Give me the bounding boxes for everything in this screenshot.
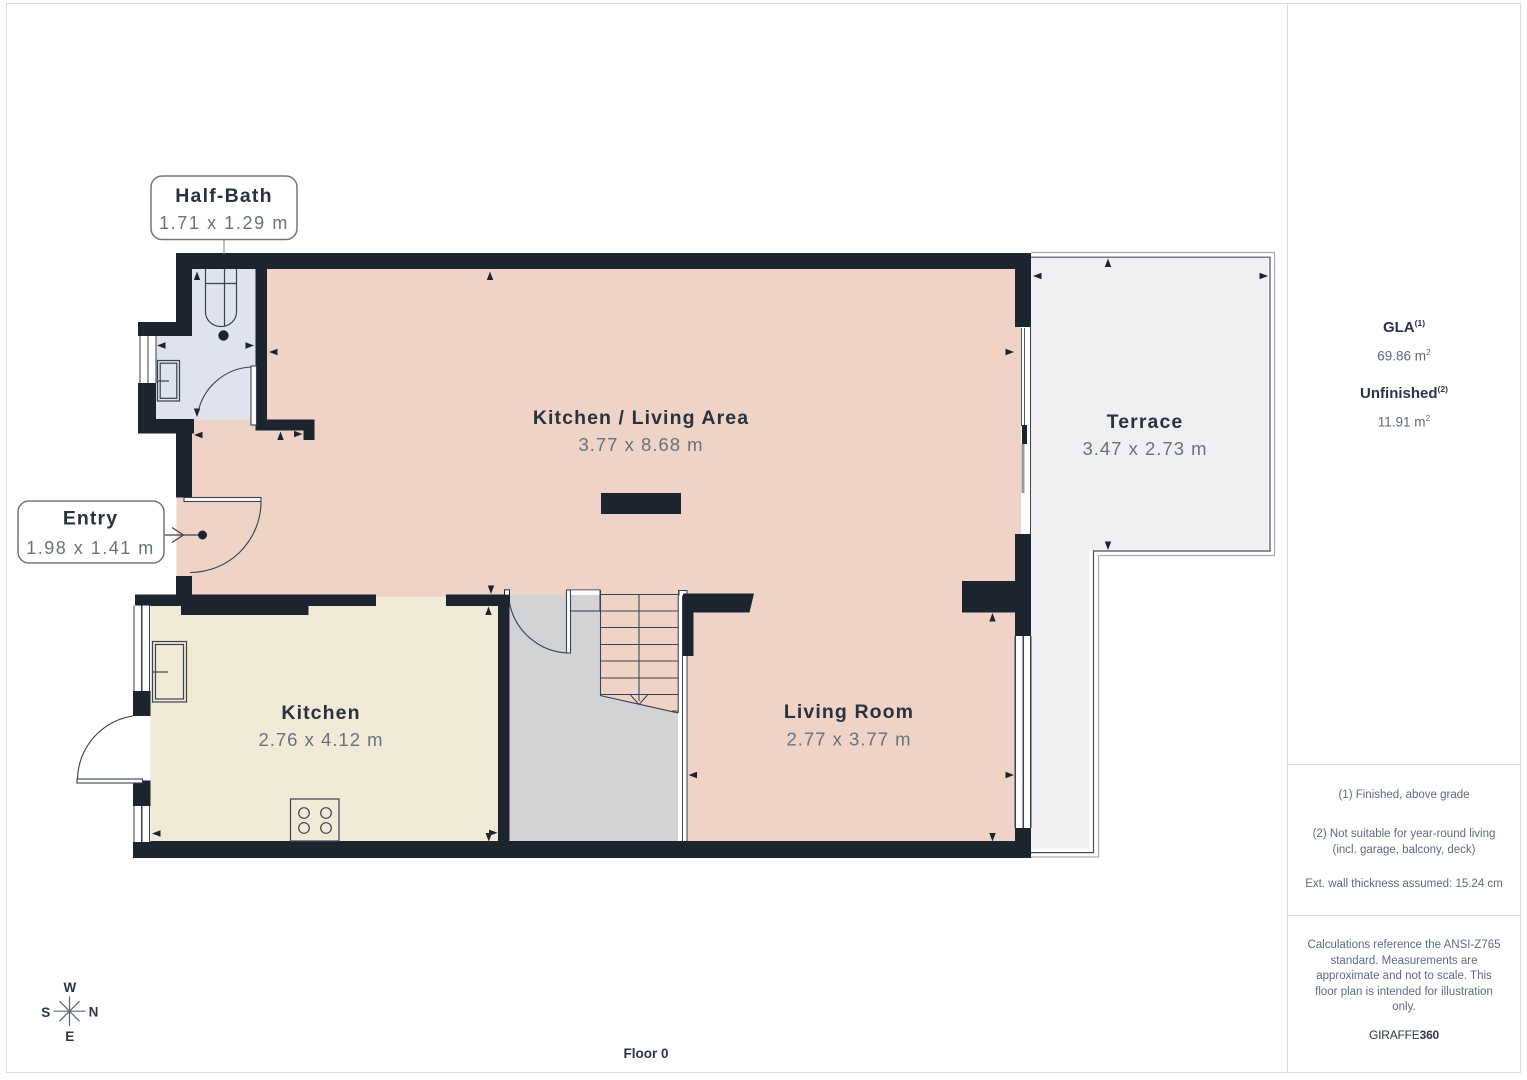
svg-text:Entry: Entry — [63, 508, 118, 530]
svg-text:1.71 x 1.29 m: 1.71 x 1.29 m — [159, 213, 289, 233]
svg-text:N: N — [89, 1005, 99, 1020]
svg-text:W: W — [64, 980, 77, 995]
svg-text:1.98 x 1.41 m: 1.98 x 1.41 m — [26, 538, 155, 558]
svg-text:E: E — [65, 1029, 74, 1044]
svg-text:2.76 x 4.12 m: 2.76 x 4.12 m — [258, 729, 383, 750]
svg-text:Living Room: Living Room — [784, 701, 914, 723]
svg-text:Kitchen / Living Area: Kitchen / Living Area — [533, 407, 749, 429]
svg-text:Floor 0: Floor 0 — [623, 1046, 668, 1061]
svg-text:Kitchen: Kitchen — [281, 702, 360, 724]
svg-text:3.47 x 2.73 m: 3.47 x 2.73 m — [1082, 438, 1207, 459]
svg-text:Half-Bath: Half-Bath — [175, 185, 272, 207]
svg-text:2.77 x 3.77 m: 2.77 x 3.77 m — [786, 729, 911, 750]
svg-text:Terrace: Terrace — [1107, 411, 1184, 433]
svg-text:3.77 x 8.68 m: 3.77 x 8.68 m — [578, 434, 703, 455]
svg-text:S: S — [41, 1005, 50, 1020]
